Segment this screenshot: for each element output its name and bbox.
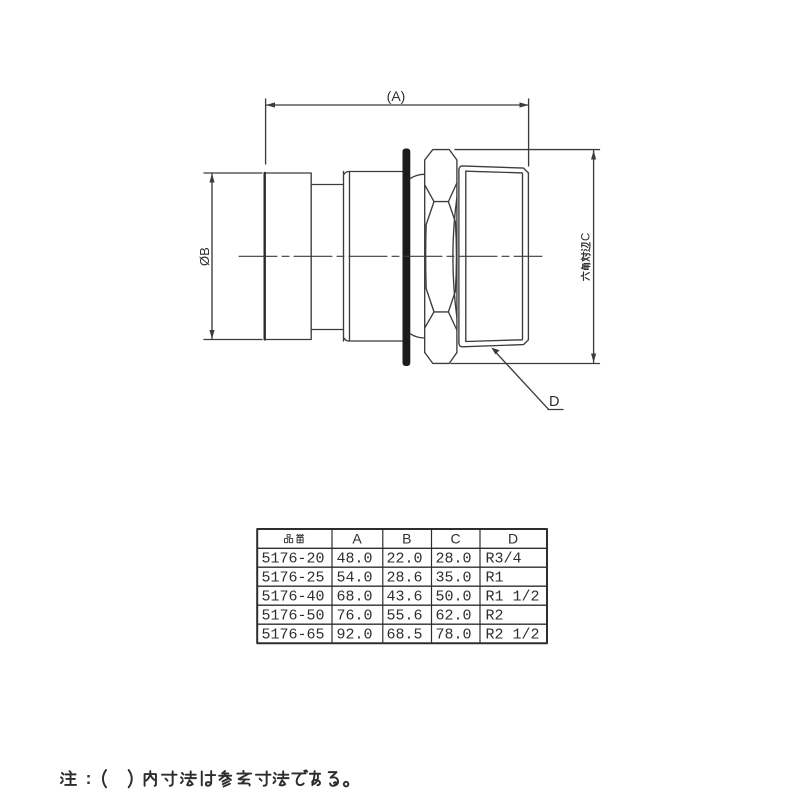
svg-text:(A): (A) bbox=[387, 88, 406, 104]
svg-text:D: D bbox=[549, 394, 559, 410]
svg-text:28.6: 28.6 bbox=[387, 570, 423, 587]
svg-text:B: B bbox=[402, 531, 411, 547]
svg-text:35.0: 35.0 bbox=[436, 570, 472, 587]
svg-text:28.0: 28.0 bbox=[436, 551, 472, 568]
svg-text:ØB: ØB bbox=[197, 247, 212, 266]
svg-text:68.5: 68.5 bbox=[387, 627, 423, 644]
svg-text:5176-65: 5176-65 bbox=[262, 627, 325, 644]
svg-text:68.0: 68.0 bbox=[337, 589, 373, 606]
svg-text:5176-40: 5176-40 bbox=[262, 589, 325, 606]
svg-text:43.6: 43.6 bbox=[387, 589, 423, 606]
svg-text:54.0: 54.0 bbox=[337, 570, 373, 587]
svg-text:R3/4: R3/4 bbox=[486, 551, 522, 568]
svg-text:48.0: 48.0 bbox=[337, 551, 373, 568]
svg-text:62.0: 62.0 bbox=[436, 608, 472, 625]
svg-text:R2: R2 bbox=[486, 608, 504, 625]
svg-text:C: C bbox=[450, 531, 460, 547]
svg-text:50.0: 50.0 bbox=[436, 589, 472, 606]
svg-text:5176-25: 5176-25 bbox=[262, 570, 325, 587]
svg-text:R2 1/2: R2 1/2 bbox=[486, 627, 540, 644]
svg-text:78.0: 78.0 bbox=[436, 627, 472, 644]
svg-text:5176-50: 5176-50 bbox=[262, 608, 325, 625]
svg-text:C: C bbox=[581, 233, 593, 241]
svg-text:D: D bbox=[508, 531, 518, 547]
svg-text:R1: R1 bbox=[486, 570, 504, 587]
svg-text:92.0: 92.0 bbox=[337, 627, 373, 644]
svg-text:76.0: 76.0 bbox=[337, 608, 373, 625]
svg-text:55.6: 55.6 bbox=[387, 608, 423, 625]
svg-text:22.0: 22.0 bbox=[387, 551, 423, 568]
svg-text:5176-20: 5176-20 bbox=[262, 551, 325, 568]
svg-text:R1 1/2: R1 1/2 bbox=[486, 589, 540, 606]
svg-text:A: A bbox=[352, 531, 362, 547]
